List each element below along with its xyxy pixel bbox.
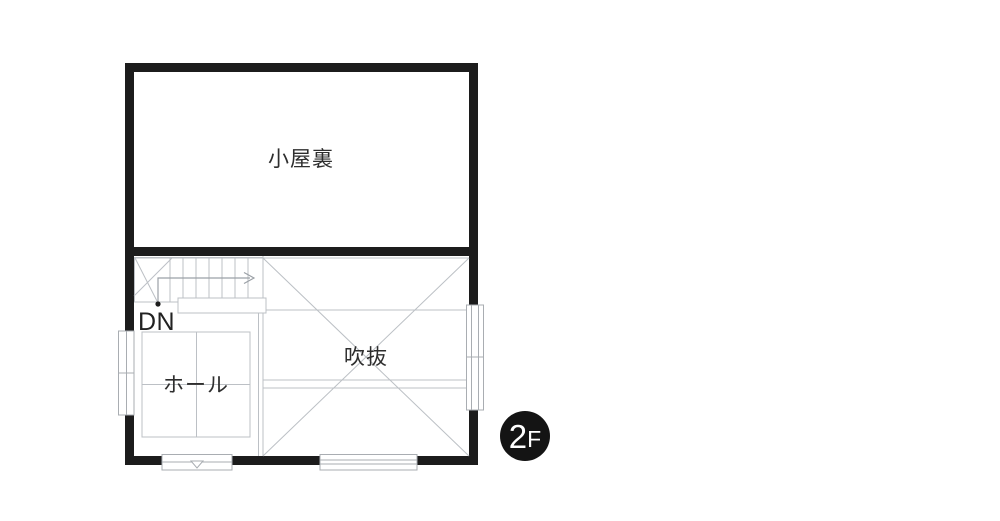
- wall-middle: [125, 247, 478, 256]
- stair-start-dot: [155, 301, 160, 306]
- stair-winder-line: [134, 258, 172, 296]
- room-label-hall: ホール: [163, 369, 229, 399]
- stair-landing: [178, 298, 266, 313]
- floor-badge-number: 2: [509, 420, 527, 453]
- floor-badge: 2F: [500, 411, 550, 461]
- wall-bottom-a: [125, 456, 162, 465]
- wall-right-lower-a: [469, 256, 478, 305]
- exterior-walls: [125, 63, 478, 465]
- void-area: [134, 256, 469, 456]
- room-label-attic: 小屋裏: [268, 143, 334, 173]
- wall-left-upper: [125, 63, 134, 256]
- wall-bottom-b: [232, 456, 320, 465]
- stairs-direction-label: DN: [138, 308, 175, 337]
- floor-plan-canvas: 小屋裏 吹抜 ホール DN 2F: [0, 0, 1000, 521]
- wall-left-lower-a: [125, 256, 134, 331]
- stair-winder-line: [135, 258, 158, 303]
- wall-top: [125, 63, 478, 72]
- floor-badge-suffix: F: [527, 428, 541, 451]
- wall-bottom-c: [417, 456, 478, 465]
- window-bottom-right: [320, 455, 417, 471]
- room-label-void: 吹抜: [344, 341, 388, 371]
- stairs: [134, 258, 266, 314]
- wall-right-upper: [469, 63, 478, 256]
